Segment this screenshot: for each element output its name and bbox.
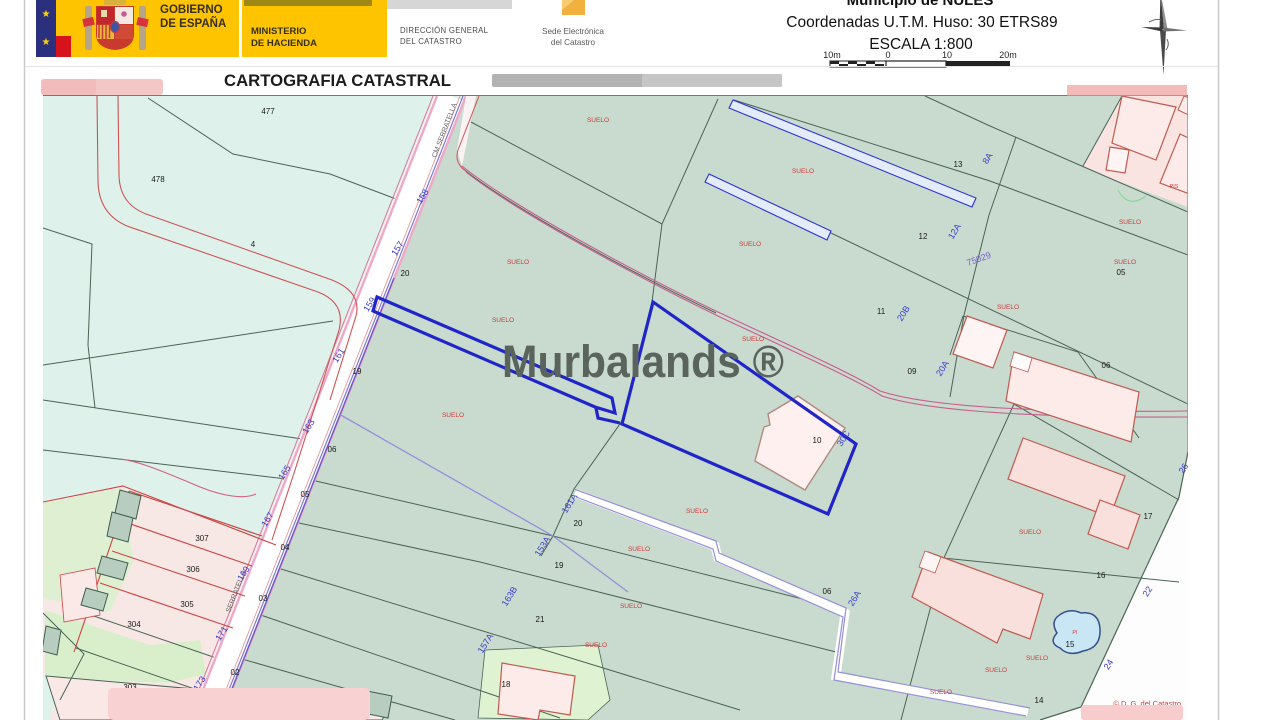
svg-text:14: 14 (1035, 696, 1044, 705)
svg-text:DEL CATASTRO: DEL CATASTRO (400, 37, 462, 46)
svg-text:MINISTERIO: MINISTERIO (251, 26, 306, 37)
svg-text:20: 20 (574, 519, 583, 528)
svg-text:20: 20 (401, 269, 410, 278)
svg-text:21: 21 (536, 615, 545, 624)
svg-text:DE HACIENDA: DE HACIENDA (251, 38, 317, 49)
svg-text:4: 4 (251, 240, 256, 249)
svg-text:06: 06 (823, 587, 832, 596)
svg-text:10: 10 (942, 50, 952, 60)
svg-text:★: ★ (42, 37, 51, 48)
svg-text:SUELO: SUELO (739, 241, 761, 248)
svg-text:SUELO: SUELO (442, 412, 464, 419)
svg-text:SUELO: SUELO (930, 689, 952, 696)
svg-text:06: 06 (1102, 361, 1111, 370)
svg-text:16: 16 (1097, 571, 1106, 580)
svg-text:02: 02 (231, 668, 240, 677)
svg-text:304: 304 (127, 620, 141, 629)
svg-text:307: 307 (195, 534, 209, 543)
svg-text:PIS: PIS (1170, 184, 1179, 190)
svg-text:SUELO: SUELO (1114, 259, 1136, 266)
svg-text:13: 13 (954, 160, 963, 169)
svg-text:SUELO: SUELO (620, 603, 642, 610)
svg-text:SUELO: SUELO (997, 304, 1019, 311)
svg-text:11: 11 (877, 307, 886, 316)
svg-text:SUELO: SUELO (792, 168, 814, 175)
svg-text:SUELO: SUELO (507, 259, 529, 266)
svg-text:Murbalands ®: Murbalands ® (502, 336, 784, 387)
svg-text:19: 19 (555, 561, 564, 570)
svg-text:SUELO: SUELO (492, 317, 514, 324)
svg-text:04: 04 (281, 543, 290, 552)
svg-text:★: ★ (42, 9, 51, 20)
svg-text:12: 12 (919, 232, 928, 241)
svg-text:GOBIERNO: GOBIERNO (160, 4, 223, 16)
svg-text:Coordenadas U.T.M. Huso: 30 ET: Coordenadas U.T.M. Huso: 30 ETRS89 (786, 14, 1057, 31)
svg-text:SUELO: SUELO (587, 117, 609, 124)
svg-text:DIRECCIÓN GENERAL: DIRECCIÓN GENERAL (400, 26, 489, 35)
svg-text:Sede Electrónica: Sede Electrónica (542, 27, 604, 36)
svg-text:17: 17 (1144, 512, 1153, 521)
svg-text:05: 05 (301, 490, 310, 499)
svg-text:SUELO: SUELO (628, 546, 650, 553)
svg-text:19: 19 (353, 367, 362, 376)
svg-text:477: 477 (261, 107, 275, 116)
svg-text:Municipio de NULES: Municipio de NULES (847, 0, 994, 9)
svg-text:CARTOGRAFIA CATASTRAL: CARTOGRAFIA CATASTRAL (224, 72, 451, 90)
svg-text:15: 15 (1066, 640, 1075, 649)
svg-text:306: 306 (186, 565, 200, 574)
svg-text:SUELO: SUELO (686, 508, 708, 515)
svg-text:SUELO: SUELO (1019, 529, 1041, 536)
svg-text:del Catastro: del Catastro (551, 38, 596, 47)
svg-text:20m: 20m (999, 50, 1017, 60)
svg-text:SUELO: SUELO (985, 667, 1007, 674)
svg-text:SUELO: SUELO (585, 642, 607, 649)
svg-text:03: 03 (259, 594, 268, 603)
svg-text:SUELO: SUELO (1026, 655, 1048, 662)
svg-text:305: 305 (180, 600, 194, 609)
svg-text:18: 18 (502, 680, 511, 689)
svg-text:PI: PI (1072, 630, 1078, 636)
svg-text:478: 478 (151, 175, 165, 184)
svg-text:0: 0 (885, 50, 890, 60)
svg-text:SUELO: SUELO (1119, 219, 1141, 226)
svg-text:10m: 10m (823, 50, 841, 60)
svg-text:10: 10 (813, 436, 822, 445)
svg-text:09: 09 (908, 367, 917, 376)
svg-text:05: 05 (1117, 268, 1126, 277)
svg-text:DE ESPAÑA: DE ESPAÑA (160, 17, 226, 30)
svg-text:06: 06 (328, 445, 337, 454)
